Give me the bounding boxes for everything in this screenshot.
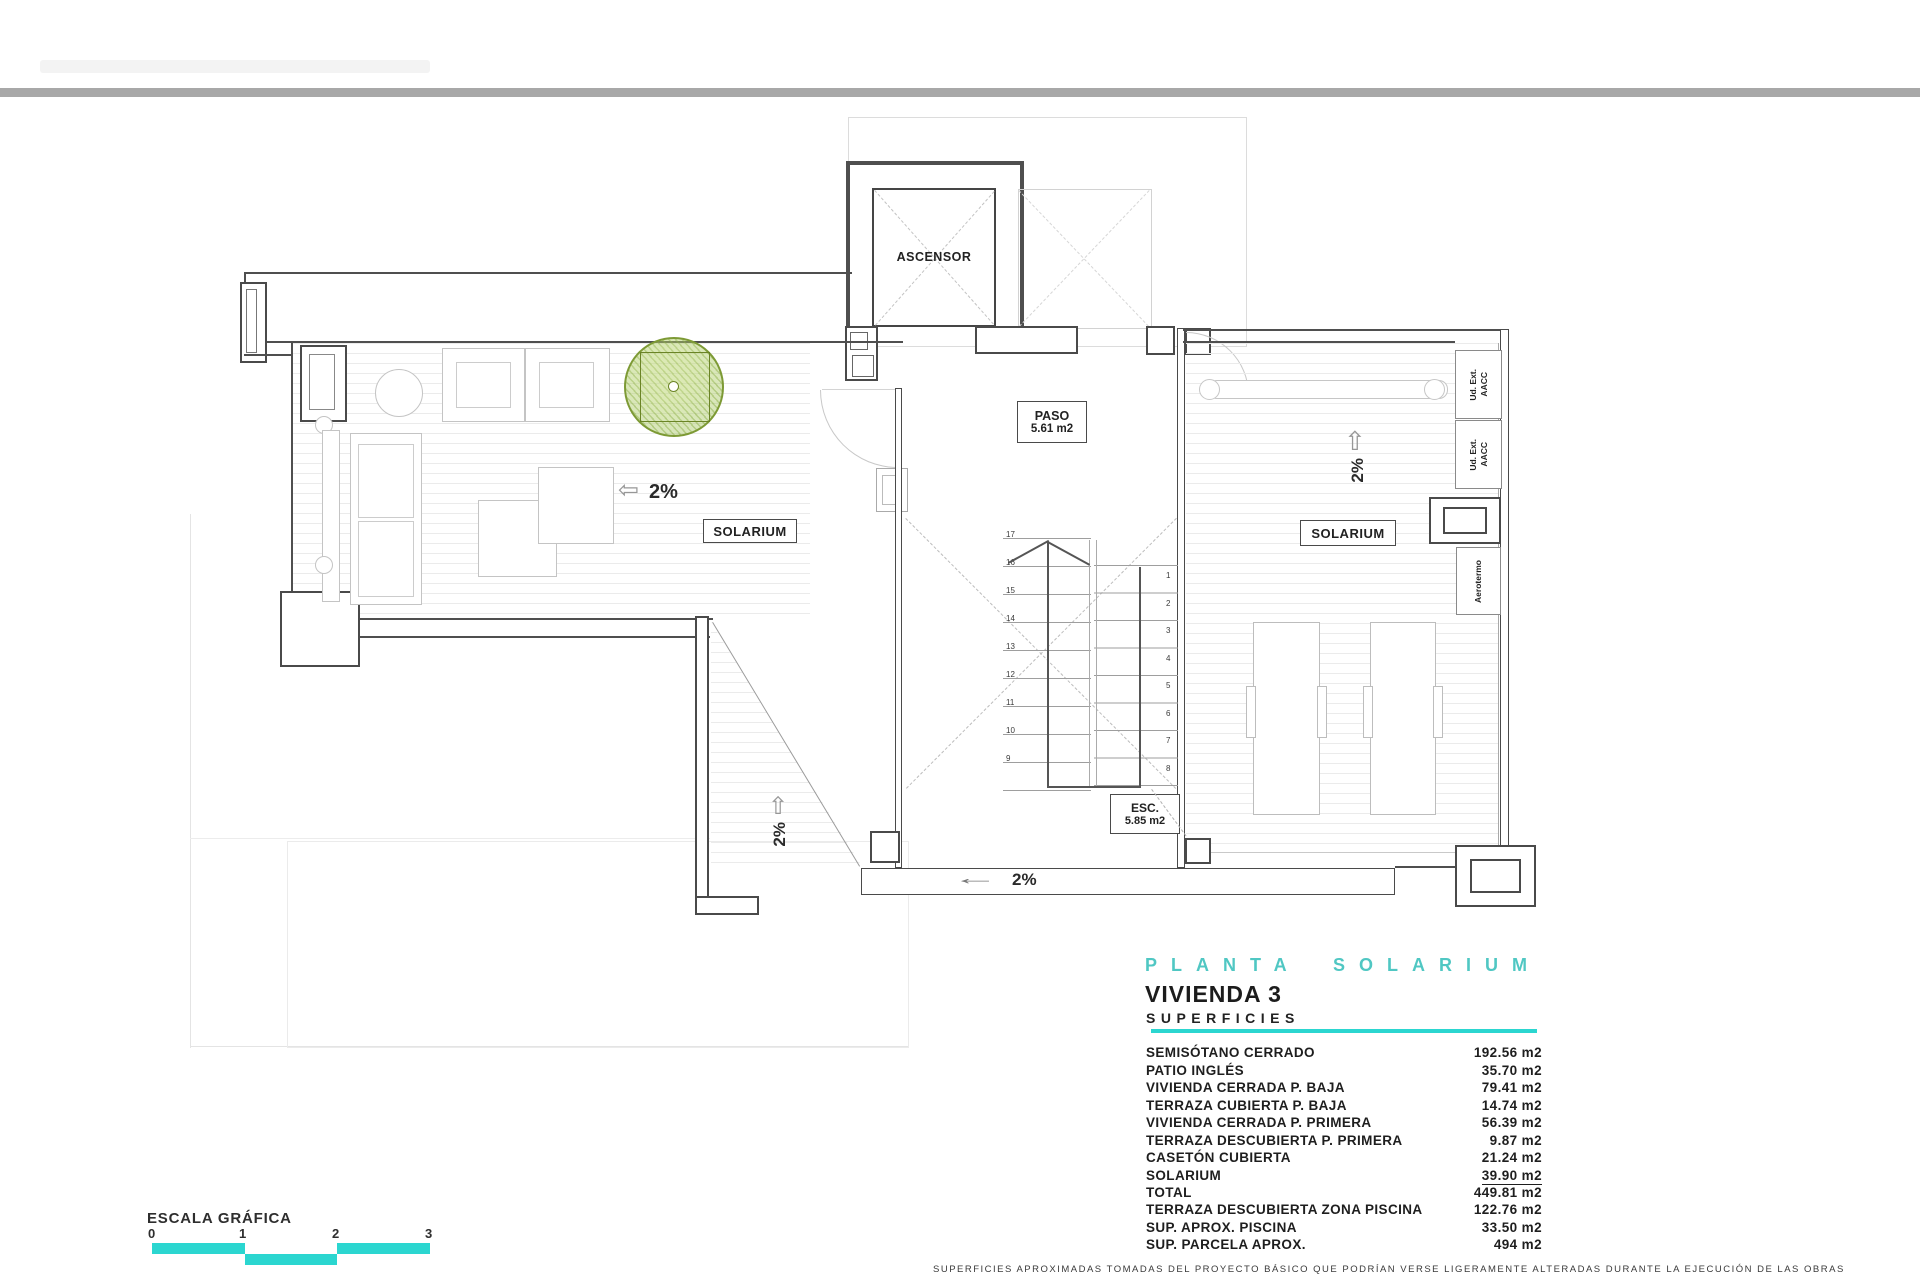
- stair-number: 4: [1166, 655, 1170, 663]
- terrace-wall-left: [695, 616, 709, 915]
- surface-row-label: SUP. PARCELA APROX.: [1146, 1237, 1306, 1255]
- surface-row-label: SOLARIUM: [1146, 1168, 1221, 1186]
- wall-pillar-inner: [852, 355, 874, 377]
- stair-numbers-left: 17161514131211109: [1006, 531, 1020, 791]
- lounger-armrest: [1246, 686, 1256, 738]
- sun-lounger: [1370, 622, 1436, 815]
- stair-handrail: [1096, 540, 1097, 788]
- surfaces-table-secondary: TERRAZA DESCUBIERTA ZONA PISCINA122.76 m…: [1146, 1202, 1542, 1255]
- surface-row-value: 122.76 m2: [1474, 1202, 1542, 1220]
- sofa-seat: [358, 521, 414, 597]
- surface-row: SUP. APROX. PISCINA33.50 m2: [1146, 1220, 1542, 1238]
- lounger-armrest: [1317, 686, 1327, 738]
- surface-row: CASETÓN CUBIERTA21.24 m2: [1146, 1150, 1542, 1168]
- surfaces-table: SEMISÓTANO CERRADO192.56 m2PATIO INGLÉS3…: [1146, 1045, 1542, 1203]
- ac-unit-box: Ud. Ext. AACC: [1455, 420, 1502, 489]
- stair-number: 6: [1166, 710, 1170, 718]
- railing-post-circle: [1424, 379, 1445, 400]
- elevator-label: ASCENSOR: [872, 250, 996, 264]
- square-table: [538, 467, 614, 544]
- surface-row-value: 33.50 m2: [1482, 1220, 1542, 1238]
- surface-row-value: 79.41 m2: [1482, 1080, 1542, 1098]
- railing-post-circle: [315, 556, 333, 574]
- surface-row-value: 35.70 m2: [1482, 1063, 1542, 1081]
- ac-unit-label-line2: AACC: [1480, 442, 1489, 467]
- round-table: [375, 369, 423, 417]
- left-terrace-band: [244, 272, 852, 345]
- solarium-left-text: SOLARIUM: [713, 524, 786, 539]
- terrace-corner: [695, 896, 759, 915]
- armchair-seat: [456, 362, 511, 408]
- wall-line: [1395, 866, 1461, 868]
- slope-label-left: 2%: [649, 481, 678, 504]
- stair-number: 7: [1166, 737, 1170, 745]
- aerothermal-unit-inner: [1443, 507, 1487, 534]
- surface-row: SOLARIUM39.90 m2: [1146, 1168, 1542, 1186]
- long-left-arrow-icon: ←: [952, 869, 999, 887]
- esc-area: 5.85 m2: [1125, 815, 1165, 827]
- surface-row-label: TERRAZA DESCUBIERTA ZONA PISCINA: [1146, 1202, 1423, 1220]
- surface-row: SEMISÓTANO CERRADO192.56 m2: [1146, 1045, 1542, 1063]
- solarium-right-text: SOLARIUM: [1311, 526, 1384, 541]
- surface-row: TERRAZA DESCUBIERTA ZONA PISCINA122.76 m…: [1146, 1202, 1542, 1220]
- aerothermal-label: Aerotermo: [1474, 560, 1483, 603]
- surface-row: TOTAL449.81 m2: [1146, 1185, 1542, 1203]
- aerothermal-label-box: Aerotermo: [1456, 547, 1501, 615]
- surface-row-label: VIVIENDA CERRADA P. BAJA: [1146, 1080, 1345, 1098]
- surface-row-label: PATIO INGLÉS: [1146, 1063, 1244, 1081]
- stair-number: 9: [1006, 755, 1010, 763]
- window-unit-inner: [246, 289, 257, 353]
- surface-row-label: SEMISÓTANO CERRADO: [1146, 1045, 1315, 1063]
- surface-row: VIVIENDA CERRADA P. PRIMERA56.39 m2: [1146, 1115, 1542, 1133]
- surfaces-heading: SUPERFICIES: [1146, 1010, 1300, 1026]
- wall-line: [1183, 329, 1509, 331]
- sofa-seat: [358, 444, 414, 518]
- armchair-seat: [539, 362, 594, 408]
- lower-floor-outline: [190, 838, 710, 839]
- paso-area: 5.61 m2: [1031, 423, 1073, 435]
- stair-number: 12: [1006, 671, 1015, 679]
- corner-column-inner: [1470, 859, 1521, 893]
- paso-title: PASO: [1035, 409, 1070, 423]
- wall-pillar: [1146, 326, 1175, 355]
- surface-row-value: 14.74 m2: [1482, 1098, 1542, 1116]
- dwelling-title: VIVIENDA 3: [1145, 981, 1282, 1008]
- stair-number: 15: [1006, 587, 1015, 595]
- ac-unit-label-line1: Ud. Ext.: [1469, 369, 1478, 401]
- chimney-box-inner: [309, 354, 335, 410]
- stair-path-line: [1047, 542, 1049, 788]
- stair-number: 13: [1006, 643, 1015, 651]
- surface-row: VIVIENDA CERRADA P. BAJA79.41 m2: [1146, 1080, 1542, 1098]
- stair-number: 5: [1166, 682, 1170, 690]
- railing-bench: [1208, 380, 1448, 399]
- stair-path-line: [1048, 786, 1140, 788]
- stair-number: 17: [1006, 531, 1015, 539]
- right-solarium-deck: [1186, 343, 1499, 853]
- ac-unit-label-line2: AACC: [1480, 372, 1489, 397]
- floor-plan-sheet: ASCENSOR: [0, 0, 1920, 1280]
- lounger-armrest: [1433, 686, 1443, 738]
- bench-strip: [322, 430, 340, 602]
- ac-unit-box: Ud. Ext. AACC: [1455, 350, 1502, 419]
- surface-row: SUP. PARCELA APROX.494 m2: [1146, 1237, 1542, 1255]
- door-swing-arc: [820, 390, 898, 468]
- stair-wall-left: [895, 388, 902, 868]
- bottom-walkway: [861, 868, 1395, 895]
- slope-label-bottom: 2%: [1012, 870, 1037, 890]
- tree-trunk-dot: [668, 381, 679, 392]
- sun-lounger: [1253, 622, 1320, 815]
- wall-segment: [975, 326, 1078, 354]
- surface-row-label: TOTAL: [1146, 1185, 1192, 1203]
- stair-number: 10: [1006, 727, 1015, 735]
- paso-box: PASO 5.61 m2: [1017, 401, 1087, 443]
- lower-floor-outline: [287, 841, 909, 1048]
- stair-path-line: [1139, 567, 1141, 788]
- railing-post-circle: [1199, 379, 1220, 400]
- ac-unit-label-line1: Ud. Ext.: [1469, 439, 1478, 471]
- door-leaf-line: [822, 389, 897, 390]
- plan-title: PLANTA SOLARIUM: [1145, 955, 1541, 976]
- up-arrow-icon: ⇧: [1344, 428, 1366, 454]
- wall-pillar: [1185, 838, 1211, 864]
- surface-row-label: SUP. APROX. PISCINA: [1146, 1220, 1297, 1238]
- wall-line: [358, 636, 710, 638]
- slope-label-right: 2%: [1349, 458, 1366, 483]
- surface-row-label: CASETÓN CUBIERTA: [1146, 1150, 1291, 1168]
- surface-row: PATIO INGLÉS35.70 m2: [1146, 1063, 1542, 1081]
- surface-row-value: 494 m2: [1494, 1237, 1542, 1255]
- solarium-left-label: SOLARIUM: [703, 519, 797, 543]
- surface-row: TERRAZA DESCUBIERTA P. PRIMERA9.87 m2: [1146, 1133, 1542, 1151]
- stair-number: 8: [1166, 765, 1170, 773]
- stair-number: 3: [1166, 627, 1170, 635]
- stair-number: 1: [1166, 572, 1170, 580]
- lounger-armrest: [1363, 686, 1373, 738]
- surface-row-label: TERRAZA DESCUBIERTA P. PRIMERA: [1146, 1133, 1403, 1151]
- surface-row-label: TERRAZA CUBIERTA P. BAJA: [1146, 1098, 1347, 1116]
- surface-row-label: VIVIENDA CERRADA P. PRIMERA: [1146, 1115, 1372, 1133]
- surface-row-value: 9.87 m2: [1490, 1133, 1542, 1151]
- wall-step: [280, 591, 360, 667]
- surface-row-value: 192.56 m2: [1474, 1045, 1542, 1063]
- left-arrow-icon: ⇦: [618, 478, 639, 503]
- slope-label-lower: 2%: [771, 822, 788, 847]
- stair-number: 2: [1166, 600, 1170, 608]
- wall-line: [244, 354, 292, 356]
- surface-row-value: 449.81 m2: [1474, 1185, 1542, 1203]
- stair-number: 11: [1006, 699, 1014, 707]
- surface-row-value: 56.39 m2: [1482, 1115, 1542, 1133]
- surface-row-value: 39.90 m2: [1482, 1168, 1542, 1186]
- stair-numbers-right: 12345678: [1166, 572, 1178, 798]
- stair-handrail: [1089, 540, 1090, 788]
- up-arrow-icon: ⇧: [768, 795, 788, 819]
- wall-pillar: [870, 831, 900, 863]
- lower-floor-outline: [190, 514, 191, 1048]
- stair-number: 14: [1006, 615, 1015, 623]
- disclaimer-text: SUPERFICIES APROXIMADAS TOMADAS DEL PROY…: [933, 1264, 1773, 1275]
- stair-wall-right: [1177, 328, 1185, 868]
- surfaces-rule: [1151, 1029, 1537, 1033]
- solarium-right-label: SOLARIUM: [1300, 520, 1396, 546]
- floor-plan: ASCENSOR: [0, 0, 1920, 1280]
- surface-row-value: 21.24 m2: [1482, 1150, 1542, 1168]
- surface-row: TERRAZA CUBIERTA P. BAJA14.74 m2: [1146, 1098, 1542, 1116]
- esc-title: ESC.: [1131, 801, 1159, 815]
